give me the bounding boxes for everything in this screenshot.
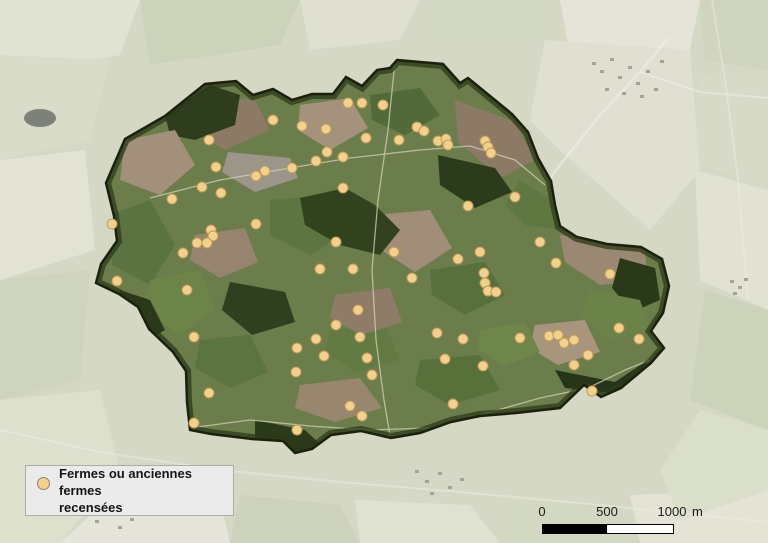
farm-marker [394,135,404,145]
farm-marker [367,370,377,380]
farm-marker [343,98,353,108]
farm-marker [569,360,579,370]
farm-marker [389,247,399,257]
legend-label-line1: Fermes ou anciennes fermes [59,466,192,498]
farm-marker [634,334,644,344]
farm-marker [479,268,489,278]
farm-marker [311,156,321,166]
farm-marker [362,353,372,363]
farm-marker [321,124,331,134]
farm-marker [189,332,199,342]
farm-marker [167,194,177,204]
farm-marker [189,418,199,428]
farm-marker [515,333,525,343]
farm-marker [510,192,520,202]
farm-marker [569,335,579,345]
farm-marker [251,171,261,181]
farm-marker [355,332,365,342]
farm-marker [407,273,417,283]
scale-bar: 0 500 1000 m [532,504,732,538]
scale-bar-graphic [542,524,674,534]
farm-marker [331,320,341,330]
farm-marker [463,201,473,211]
farm-marker [297,121,307,131]
farm-marker [353,305,363,315]
farm-marker [311,334,321,344]
farm-marker [544,331,554,341]
farm-marker [587,386,597,396]
legend-box: Fermes ou anciennes fermes recensées [25,465,234,516]
farm-marker [614,323,624,333]
farm-marker [197,182,207,192]
farm-marker [319,351,329,361]
farm-marker [478,361,488,371]
legend-label-line2: recensées [59,500,123,515]
farm-marker [491,287,501,297]
farm-marker [345,401,355,411]
farm-marker [357,98,367,108]
farm-marker [551,258,561,268]
farm-marker [182,285,192,295]
map-figure: Fermes ou anciennes fermes recensées 0 5… [0,0,768,543]
farm-marker [338,183,348,193]
farm-marker [338,152,348,162]
farm-marker [291,367,301,377]
farm-marker [292,425,302,435]
farm-marker [268,115,278,125]
farm-marker [432,328,442,338]
scale-bar-labels: 0 500 1000 m [532,504,732,521]
farm-marker [292,343,302,353]
farm-marker [378,100,388,110]
farm-marker [357,411,367,421]
farm-marker [315,264,325,274]
farm-marker [202,238,212,248]
farm-marker [443,140,453,150]
legend-label: Fermes ou anciennes fermes recensées [59,465,225,516]
scale-unit: m [692,504,703,519]
farm-marker [216,188,226,198]
scale-tick-0: 0 [538,504,545,519]
farm-marker [583,350,593,360]
farm-marker [440,354,450,364]
scale-tick-500: 500 [596,504,618,519]
scale-bar-black-segment [543,525,607,533]
farm-marker [475,247,485,257]
farm-marker [331,237,341,247]
farm-marker-icon [37,477,50,490]
farm-marker [419,126,429,136]
farm-marker [486,148,496,158]
farm-marker [287,163,297,173]
farm-marker [178,248,188,258]
farm-marker [211,162,221,172]
industrial-site [24,109,56,127]
farm-marker [251,219,261,229]
farm-marker [605,269,615,279]
farm-marker [453,254,463,264]
farm-marker [348,264,358,274]
farm-marker [204,135,214,145]
farm-marker [204,388,214,398]
farm-marker [458,334,468,344]
aerial-map-canvas [0,0,768,543]
farm-marker [112,276,122,286]
farm-marker [535,237,545,247]
scale-tick-1000: 1000 [658,504,687,519]
farm-marker [260,166,270,176]
farm-marker [322,147,332,157]
farm-marker [559,338,569,348]
farm-marker [361,133,371,143]
farm-marker [107,219,117,229]
farm-marker [192,238,202,248]
farm-marker [448,399,458,409]
